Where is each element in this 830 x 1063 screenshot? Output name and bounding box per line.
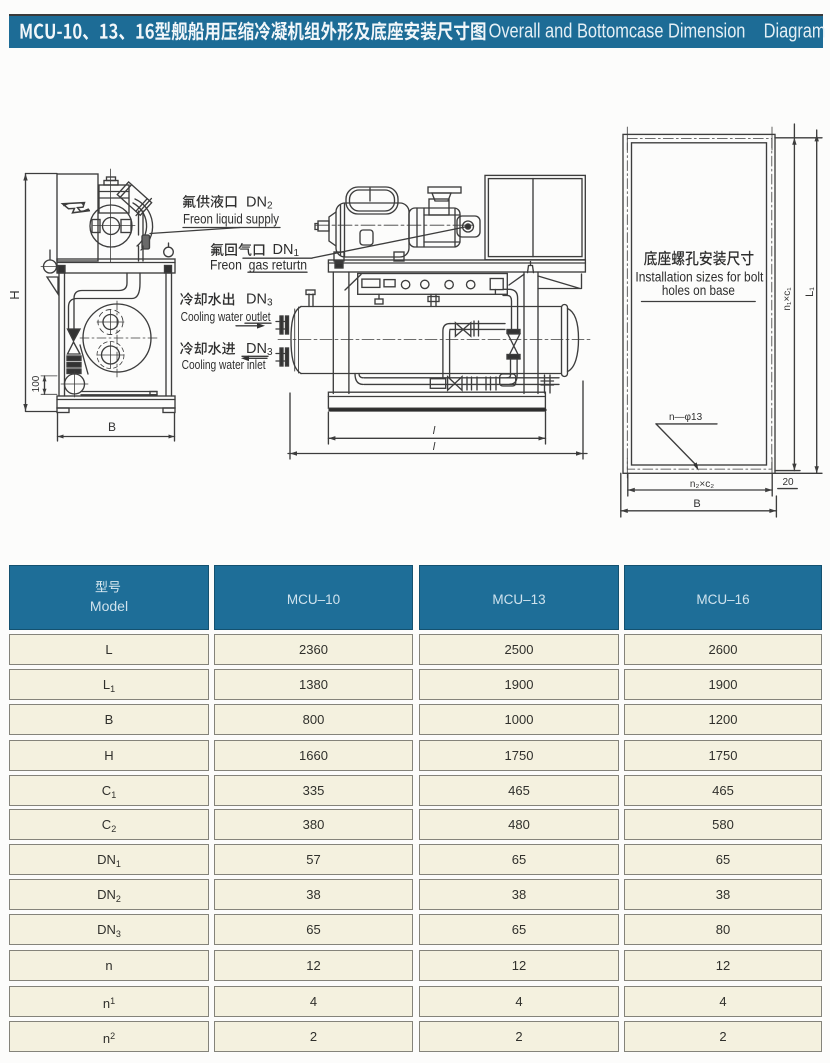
svg-text:2: 2 [267,201,273,212]
svg-text:DN: DN [246,341,267,357]
svg-text:3: 3 [267,298,273,309]
svg-text:DN: DN [246,292,267,308]
svg-text:Cooling water inlet: Cooling water inlet [182,357,266,372]
svg-text:100: 100 [31,375,42,392]
svg-text:Overall and Bottomcase Dimensi: Overall and Bottomcase Dimension Diagram [489,19,826,42]
svg-text:L₁: L₁ [804,287,816,297]
svg-text:DN: DN [246,195,267,211]
svg-text:MCU–16: MCU–16 [696,592,749,607]
svg-text:20: 20 [782,477,794,488]
svg-text:n₂×c₂: n₂×c₂ [690,479,714,490]
svg-text:MCU–10: MCU–10 [287,592,340,607]
svg-text:H: H [7,290,22,299]
svg-text:Model: Model [90,598,128,614]
svg-text:holes on base: holes on base [662,283,735,298]
svg-text:Freon gas returtn: Freon gas returtn [210,258,307,273]
svg-text:Cooling water outlet: Cooling water outlet [181,309,271,324]
svg-text:n—φ13: n—φ13 [669,412,703,423]
svg-text:B: B [108,420,116,434]
svg-text:B: B [693,498,700,510]
svg-text:l: l [433,425,436,437]
svg-text:l: l [433,441,436,453]
svg-text:MCU–13: MCU–13 [492,592,545,607]
svg-text:n₁×c₁: n₁×c₁ [782,287,793,311]
svg-text:Freon liquid supply: Freon liquid supply [183,212,279,227]
svg-text:DN: DN [273,242,294,258]
